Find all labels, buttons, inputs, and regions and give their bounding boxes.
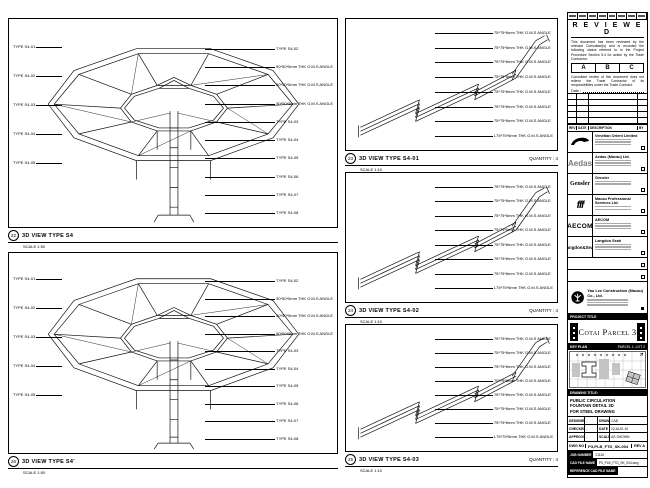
venetian-logo bbox=[568, 132, 593, 152]
callout-label: 75*75*6mm THK G.M.S ANGLE bbox=[494, 75, 553, 79]
consultant-row-empty bbox=[568, 258, 647, 270]
rev-col: REV bbox=[568, 126, 577, 130]
key-plan-label: KEY PLAN bbox=[570, 345, 587, 349]
callout-label: TYPE S4-04 bbox=[13, 132, 35, 136]
designed-value: - bbox=[585, 417, 598, 425]
consultant-name: AECOM bbox=[595, 218, 645, 222]
view-number-bubble: 23 bbox=[345, 153, 356, 164]
grade-c: C bbox=[620, 64, 643, 72]
job-number-value: 21126 bbox=[593, 451, 647, 458]
callout-label: 75*75*6mm THK G.M.S ANGLE bbox=[494, 407, 553, 411]
date-label: Date : bbox=[571, 89, 581, 93]
consultant-row-venetian: Venetian Orient Limited bbox=[568, 132, 647, 153]
consultant-row-langdon-seah: Langdon&Seah Langdon Seah bbox=[568, 237, 647, 258]
callout-label: 75*75*6mm THK G.M.S ANGLE bbox=[494, 46, 553, 50]
callout-label: TYPE S4-02 bbox=[13, 306, 35, 310]
contractor-name: Yau Lee Construction (Macau) Co., Ltd. bbox=[587, 289, 644, 298]
callout-label: 75*75*6mm THK G.M.S ANGLE bbox=[494, 365, 553, 369]
callout-label: 75*75*6mm THK G.M.S ANGLE bbox=[494, 199, 553, 203]
callout-label: 75*75*6mm THK G.M.S ANGLE bbox=[494, 60, 553, 64]
callout-list: 75*75*6mm THK G.M.S ANGLE75*75*6mm THK G… bbox=[494, 31, 553, 138]
callout-label: 75*75*6mm THK G.M.S ANGLE bbox=[494, 351, 553, 355]
date-col: DATE bbox=[577, 126, 589, 130]
revision-table-header: REV DATE DESCRIPTION BY bbox=[568, 124, 647, 131]
callout-label: TYPE S4-07 bbox=[276, 193, 333, 197]
status-checkbox bbox=[641, 209, 646, 214]
cad-file-label: CAD FILE NAME bbox=[568, 459, 597, 466]
view-panel-3d-type-s4: TYPE S4-01TYPE S4-02TYPE S4-03TYPE S4-04… bbox=[8, 18, 338, 228]
grade-a: A bbox=[572, 64, 596, 72]
consultant-address bbox=[595, 160, 645, 166]
callout-label: TYPE S4-01 bbox=[13, 277, 35, 281]
view-title-s4-01: 23 3D VIEW TYPE S4-01 QUANTITY : 4 SCALE… bbox=[345, 153, 558, 172]
callout-label: TYPE S4-03 bbox=[276, 349, 333, 353]
callout-label: 50*50*5mm THK G.M.S ANGLE bbox=[276, 314, 333, 318]
drawn-value: CAD bbox=[610, 417, 647, 425]
callout-label: TYPE S4-04 bbox=[13, 364, 35, 368]
callout-label: TYPE S4-05 bbox=[13, 393, 35, 397]
callout-label: 75*75*6mm THK G.M.S ANGLE bbox=[494, 185, 553, 189]
job-number-label: JOB NUMBER bbox=[568, 451, 593, 458]
view-title-s4-02: 24 3D VIEW TYPE S4-02 QUANTITY : 4 SCALE… bbox=[345, 305, 558, 324]
consultant-row-gensler: Gensler Gensler bbox=[568, 174, 647, 195]
consultant-address bbox=[595, 139, 645, 145]
description-col: DESCRIPTION bbox=[589, 126, 638, 130]
date-label: DATE bbox=[598, 425, 610, 433]
callout-label: TYPE S4-03 bbox=[276, 120, 333, 124]
view-panel-s4-03: 75*75*6mm THK G.M.S ANGLE75*75*6mm THK G… bbox=[345, 324, 558, 452]
drawing-sheet: TYPE S4-01TYPE S4-02TYPE S4-03TYPE S4-04… bbox=[0, 0, 650, 488]
view-number-bubble: 25 bbox=[345, 454, 356, 465]
callout-label: 75*75*6mm THK G.M.S ANGLE bbox=[494, 31, 553, 35]
callout-list-left: TYPE S4-01TYPE S4-02TYPE S4-03TYPE S4-04… bbox=[13, 45, 35, 165]
callout-label: TYPE S4-02 bbox=[276, 47, 333, 51]
view-title-text: 3D VIEW TYPE S4-02 bbox=[359, 308, 419, 314]
callout-label: 75*75*6mm THK G.M.S ANGLE bbox=[494, 214, 553, 218]
callout-label: 75*75*6mm THK G.M.S ANGLE bbox=[494, 90, 553, 94]
view-title-s4-03: 25 3D VIEW TYPE S4-03 QUANTITY : 4 SCALE… bbox=[345, 454, 558, 473]
consultant-row-mps: fff Macau Professional Services Ltd. bbox=[568, 195, 647, 216]
contractor-address bbox=[587, 299, 644, 305]
status-checkbox bbox=[641, 230, 646, 235]
callout-label: TYPE S4-02 bbox=[276, 279, 333, 283]
stamp-paragraph: This document has been reviewed by the r… bbox=[571, 40, 644, 62]
callout-label: 75*75*6mm THK G.M.S ANGLE bbox=[494, 119, 553, 123]
reviewed-stamp: R E V I E W E D This document has been r… bbox=[568, 20, 647, 94]
grade-b: B bbox=[596, 64, 620, 72]
scale-label: SCALE bbox=[598, 433, 610, 441]
callout-label: L75*75*6mm THK G.M.S ANGLE bbox=[494, 286, 553, 290]
project-name-row: Cotai Parcel 3 bbox=[568, 320, 647, 344]
job-number-row: JOB NUMBER 21126 bbox=[568, 451, 647, 459]
quantity-label: QUANTITY : 4 bbox=[529, 156, 558, 161]
consultant-address bbox=[595, 181, 645, 185]
view-panel-s4-01: 75*75*6mm THK G.M.S ANGLE75*75*6mm THK G… bbox=[345, 18, 558, 151]
callout-label: TYPE S4-03 bbox=[13, 335, 35, 339]
view-title-text: 3D VIEW TYPE S4' bbox=[22, 459, 75, 465]
callout-list: 75*75*6mm THK G.M.S ANGLE75*75*6mm THK G… bbox=[494, 185, 553, 290]
callout-label: 50*50*5mm THK G.M.S ANGLE bbox=[276, 83, 333, 87]
callout-label: TYPE S4-07 bbox=[276, 419, 333, 423]
drawn-label: DRAWN bbox=[598, 417, 610, 425]
callout-label: 75*75*6mm THK G.M.S ANGLE bbox=[494, 105, 553, 109]
cad-file-value: P3_PLB_FTD_SK_004.dwg bbox=[597, 459, 647, 466]
ornament-pillar-icon bbox=[637, 323, 645, 341]
callout-label: 75*75*6mm THK G.M.S ANGLE bbox=[494, 421, 553, 425]
callout-label: TYPE S4-06 bbox=[276, 402, 333, 406]
callout-label: L75*75*6mm THK G.M.S ANGLE bbox=[494, 435, 553, 439]
key-plan-bar: KEY PLAN PARCEL 1, LOT 2 bbox=[568, 344, 647, 350]
mps-logo: fff bbox=[568, 195, 593, 215]
reference-cad-file-row: REFERENCE CAD FILE NAME bbox=[568, 467, 647, 475]
view-scale: SCALE 1:10 bbox=[360, 167, 558, 172]
drawing-title-bar: DRAWING TITLE: bbox=[568, 390, 647, 396]
view-panel-3d-type-s4-prime: TYPE S4-01TYPE S4-02TYPE S4-03TYPE S4-04… bbox=[8, 252, 338, 454]
stamp-title: R E V I E W E D bbox=[571, 22, 644, 38]
project-title-bar: PROJECT TITLE bbox=[568, 314, 647, 320]
ornament-pillar-icon bbox=[570, 323, 578, 341]
contractor-mark bbox=[641, 307, 645, 311]
view-title-text: 3D VIEW TYPE S4-03 bbox=[359, 457, 419, 463]
quantity-label: QUANTITY : 4 bbox=[529, 457, 558, 462]
status-grade-row: A B C bbox=[571, 63, 644, 73]
approved-label: APPROVED bbox=[568, 433, 585, 441]
dwg-number-row: DWG NO P3-PLB_FTD_SK-004 REV A bbox=[568, 442, 647, 451]
callout-label: TYPE S4-04 bbox=[276, 367, 333, 371]
callout-label: TYPE S4-05 bbox=[13, 161, 35, 165]
callout-list-right: TYPE S4-0250*50*5mm THK G.M.S ANGLE50*50… bbox=[276, 279, 333, 441]
callout-label: 75*75*6mm THK G.M.S ANGLE bbox=[494, 272, 553, 276]
yau-lee-logo bbox=[571, 289, 584, 306]
callout-list-left: TYPE S4-01TYPE S4-02TYPE S4-03TYPE S4-04… bbox=[13, 277, 35, 397]
callout-label: 75*75*6mm THK G.M.S ANGLE bbox=[494, 228, 553, 232]
callout-label: 50*50*5mm THK G.M.S ANGLE bbox=[276, 297, 333, 301]
view-title-text: 3D VIEW TYPE S4-01 bbox=[359, 156, 419, 162]
scale-value: AS SHOWN bbox=[610, 433, 647, 441]
consultant-name: Gensler bbox=[595, 176, 645, 180]
consultant-address bbox=[595, 223, 645, 229]
callout-label: 50*50*5mm THK G.M.S ANGLE bbox=[276, 332, 333, 336]
callout-label: 75*75*6mm THK G.M.S ANGLE bbox=[494, 337, 553, 341]
view-number-bubble: 22 bbox=[8, 230, 19, 241]
aecom-logo: AECOM bbox=[568, 216, 593, 236]
stamp-date-line: Date : bbox=[571, 89, 644, 93]
callout-label: 50*50*5mm THK G.M.S ANGLE bbox=[276, 102, 333, 106]
dwg-value: P3-PLB_FTD_SK-004 bbox=[586, 444, 631, 449]
status-checkbox bbox=[641, 251, 646, 256]
quantity-label: QUANTITY : 4 bbox=[529, 308, 558, 313]
dwg-label: DWG NO bbox=[568, 444, 586, 448]
stamp-paragraph: Consultant review of this document does … bbox=[571, 75, 644, 88]
reference-cad-file-value bbox=[618, 467, 647, 475]
consultant-row-aecom: AECOM AECOM bbox=[568, 216, 647, 237]
reference-cad-file-label: REFERENCE CAD FILE NAME bbox=[568, 467, 618, 475]
view-scale: SCALE 1:50 bbox=[23, 470, 338, 475]
callout-label: 75*75*6mm THK G.M.S ANGLE bbox=[494, 257, 553, 261]
view-number-bubble: 24 bbox=[345, 305, 356, 316]
drawing-info-table: DESIGNED - DRAWN CAD CHECKED - DATE 12-A… bbox=[568, 417, 647, 442]
consultant-row-aedas: Aedas Aedas (Macau) Ltd. bbox=[568, 153, 647, 174]
view-title-s4: 22 3D VIEW TYPE S4 SCALE 1:50 bbox=[8, 230, 338, 249]
status-checkbox bbox=[641, 275, 646, 280]
langdon-seah-logo: Langdon&Seah bbox=[568, 237, 593, 257]
view-scale: SCALE 1:10 bbox=[360, 468, 558, 473]
drawing-title-line: FOR STEEL DRAWING bbox=[570, 409, 645, 415]
view-title-s4-prime: 26 3D VIEW TYPE S4' SCALE 1:50 bbox=[8, 456, 338, 475]
aedas-logo: Aedas bbox=[568, 153, 593, 173]
project-name: Cotai Parcel 3 bbox=[578, 327, 636, 337]
dwg-revision: REV A bbox=[631, 444, 647, 448]
callout-label: TYPE S4-08 bbox=[276, 437, 333, 441]
view-scale: SCALE 1:50 bbox=[23, 244, 338, 249]
callout-label: TYPE S4-06 bbox=[276, 175, 333, 179]
status-checkbox bbox=[641, 167, 646, 172]
callout-label: TYPE S4-01 bbox=[13, 45, 35, 49]
view-scale: SCALE 1:10 bbox=[360, 319, 558, 324]
consultant-name: Macau Professional Services Ltd. bbox=[595, 197, 645, 205]
status-checkbox bbox=[641, 263, 646, 268]
consultant-name: Venetian Orient Limited bbox=[595, 134, 645, 138]
contractor-row: Yau Lee Construction (Macau) Co., Ltd. bbox=[568, 282, 647, 314]
callout-label: TYPE S4-05 bbox=[276, 384, 333, 388]
callout-label: 75*75*6mm THK G.M.S ANGLE bbox=[494, 379, 553, 383]
drawing-title-text: PUBLIC CIRCULATION FOUNTAIN DETAIL 3D FO… bbox=[568, 396, 647, 417]
view-panel-s4-02: 75*75*6mm THK G.M.S ANGLE75*75*6mm THK G… bbox=[345, 172, 558, 303]
consultant-row-empty bbox=[568, 270, 647, 282]
checked-label: CHECKED bbox=[568, 425, 585, 433]
date-value: 12-AUG-10 bbox=[610, 425, 647, 433]
callout-label: TYPE S4-05 bbox=[276, 156, 333, 160]
callout-label: L75*75*6mm THK G.M.S ANGLE bbox=[494, 134, 553, 138]
callout-label: TYPE S4-03 bbox=[13, 103, 35, 107]
by-col: BY bbox=[638, 126, 647, 130]
callout-label: 50*50*5mm THK G.M.S ANGLE bbox=[276, 65, 333, 69]
status-checkbox bbox=[641, 146, 646, 151]
callout-label: TYPE S4-04 bbox=[276, 138, 333, 142]
callout-label: 75*75*6mm THK G.M.S ANGLE bbox=[494, 393, 553, 397]
title-block: R E V I E W E D This document has been r… bbox=[567, 12, 648, 478]
view-title-text: 3D VIEW TYPE S4 bbox=[22, 233, 73, 239]
checked-value: - bbox=[585, 425, 598, 433]
consultant-name: Langdon Seah bbox=[595, 239, 645, 243]
callout-list-right: TYPE S4-0250*50*5mm THK G.M.S ANGLE50*50… bbox=[276, 47, 333, 215]
callout-label: TYPE S4-02 bbox=[13, 74, 35, 78]
consultant-name: Aedas (Macau) Ltd. bbox=[595, 155, 645, 159]
designed-label: DESIGNED bbox=[568, 417, 585, 425]
revision-strip bbox=[568, 13, 647, 20]
revision-table: REV DATE DESCRIPTION BY bbox=[568, 94, 647, 132]
approved-value: - bbox=[585, 433, 598, 441]
consultant-address bbox=[595, 206, 645, 210]
callout-label: TYPE S4-08 bbox=[276, 211, 333, 215]
view-number-bubble: 26 bbox=[8, 456, 19, 467]
status-checkbox bbox=[641, 188, 646, 193]
callout-list: 75*75*6mm THK G.M.S ANGLE75*75*6mm THK G… bbox=[494, 337, 553, 439]
consultant-address bbox=[595, 244, 645, 250]
gensler-logo: Gensler bbox=[568, 174, 593, 194]
parcel-label: PARCEL 1, LOT 2 bbox=[618, 345, 645, 349]
key-plan-map bbox=[568, 350, 647, 390]
callout-label: 75*75*6mm THK G.M.S ANGLE bbox=[494, 243, 553, 247]
cad-file-row: CAD FILE NAME P3_PLB_FTD_SK_004.dwg bbox=[568, 459, 647, 467]
